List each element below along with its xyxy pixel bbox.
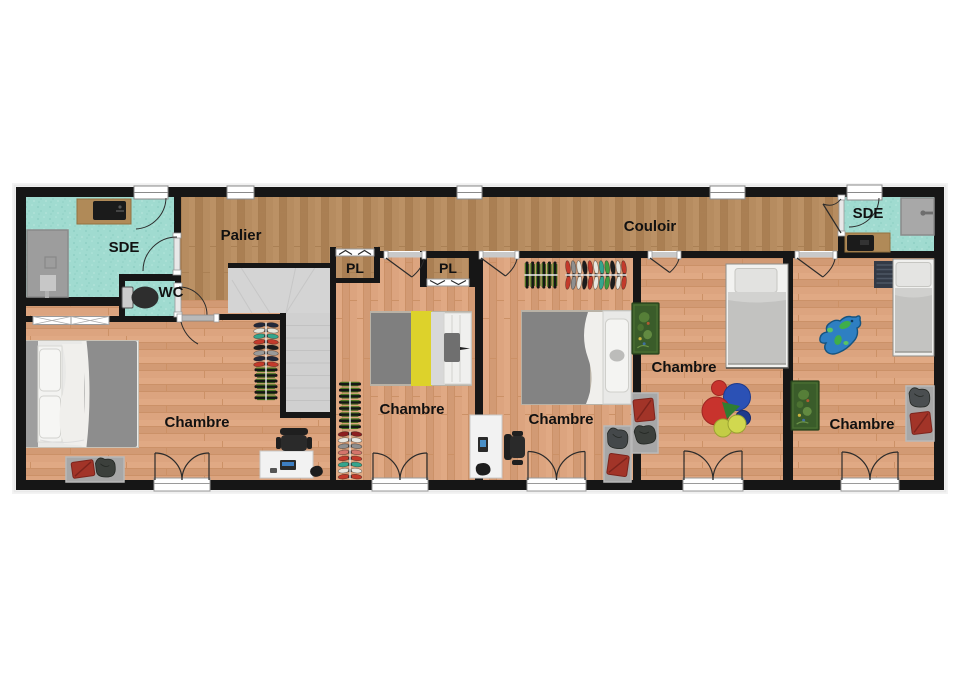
svg-text:Chambre: Chambre [829,416,894,433]
svg-text:SDE: SDE [853,205,884,222]
svg-text:WC: WC [159,284,184,301]
svg-text:Palier: Palier [221,227,262,244]
svg-text:Couloir: Couloir [624,218,677,235]
svg-text:PL: PL [439,260,457,276]
svg-text:PL: PL [346,260,364,276]
svg-text:Chambre: Chambre [164,414,229,431]
svg-text:SDE: SDE [109,239,140,256]
svg-text:Chambre: Chambre [651,359,716,376]
svg-text:Chambre: Chambre [528,411,593,428]
svg-text:Chambre: Chambre [379,401,444,418]
